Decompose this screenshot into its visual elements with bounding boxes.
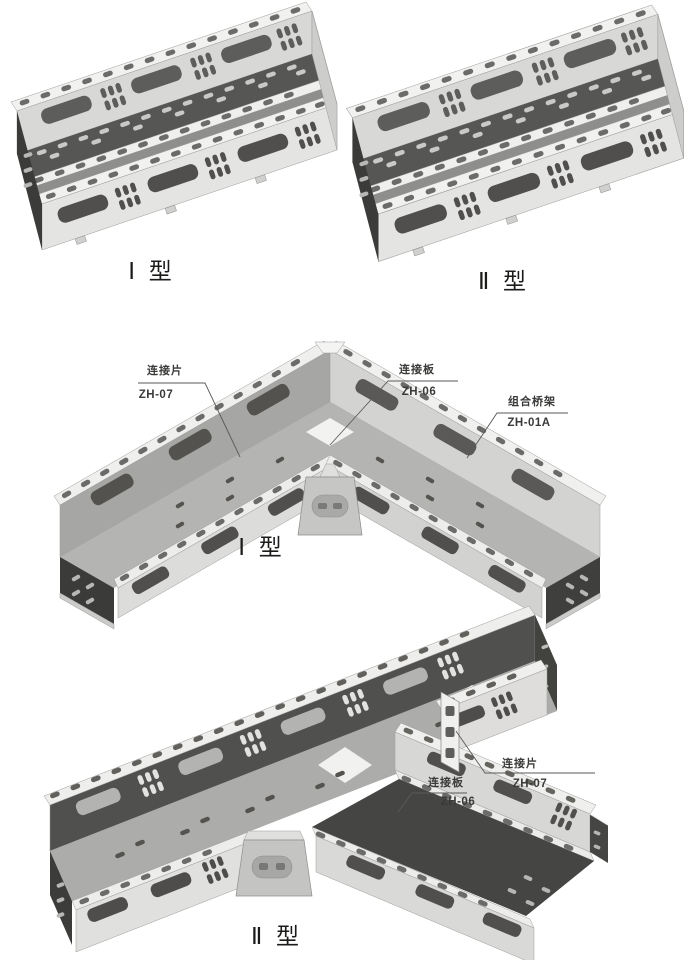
callout-code-zh06-corner: ZH-06 (374, 385, 464, 399)
figure-straight-type2 (346, 5, 683, 262)
tee-panel-recess (252, 856, 292, 878)
type-label-straight-2: Ⅱ 型 (449, 268, 559, 295)
callout-name-lianjieban-tee: 连接板 (401, 776, 491, 790)
tee-junction-piece (244, 831, 304, 840)
figure-corner-type1 (54, 341, 606, 629)
corner-panel-recess (312, 495, 348, 517)
branch-open-end (590, 814, 608, 863)
callout-code-zh07-corner: ZH-07 (111, 388, 201, 402)
catalog-page: Ⅰ 型 Ⅱ 型 连接片 ZH-07 连接板 ZH-06 组合桥架 ZH-01A … (0, 0, 700, 960)
type-label-straight-1: Ⅰ 型 (97, 258, 207, 285)
type-label-tee: Ⅱ 型 (222, 923, 332, 950)
callout-name-lianjiepian-corner: 连接片 (120, 364, 210, 378)
callout-name-lianjiepian-tee: 连接片 (475, 757, 565, 771)
technical-drawing (0, 0, 700, 960)
callout-name-lianjieban-corner: 连接板 (372, 363, 462, 377)
callout-code-zh07-tee: ZH-07 (485, 777, 575, 791)
callout-name-zuheqiaojia: 组合桥架 (487, 395, 577, 409)
callout-code-zh06-tee: ZH-06 (413, 795, 503, 809)
callout-code-zh01a: ZH-01A (484, 416, 574, 430)
figure-straight-type1 (11, 2, 337, 250)
type-label-corner: Ⅰ 型 (207, 534, 317, 561)
